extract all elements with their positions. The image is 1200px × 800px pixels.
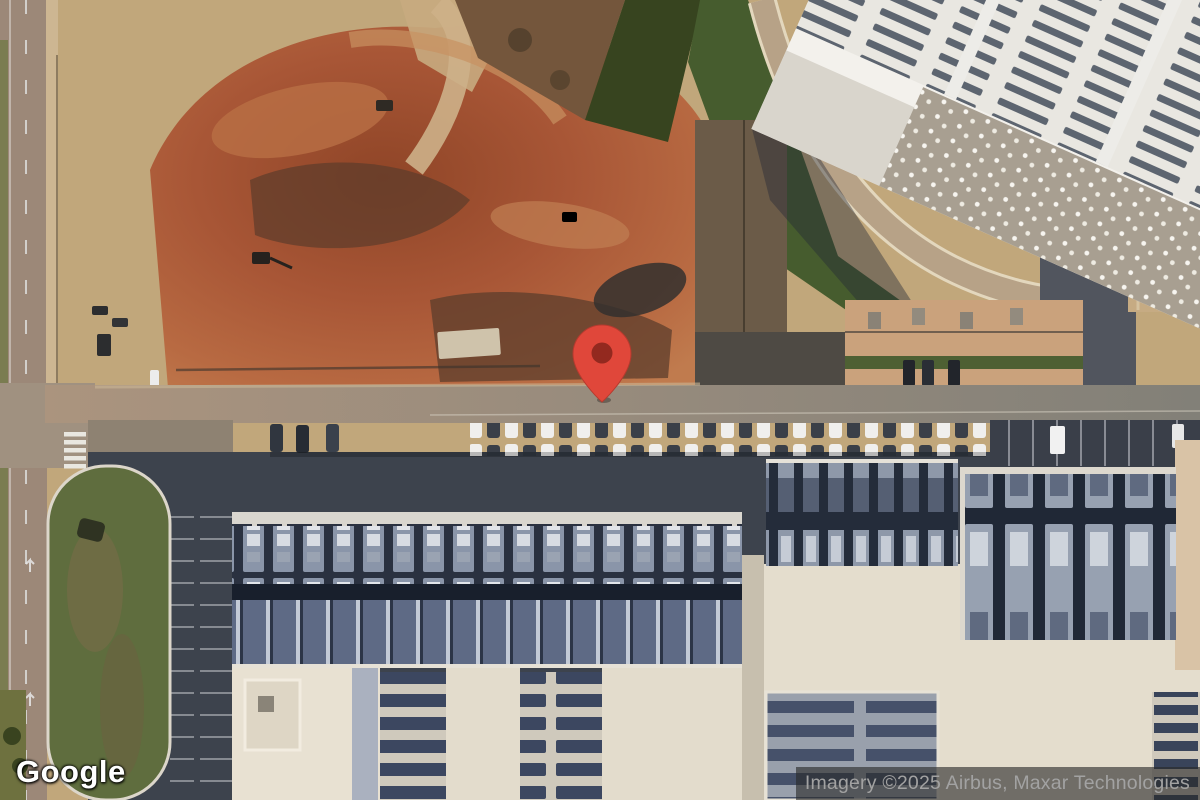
imagery-attribution-text: Imagery ©2025 Airbus, Maxar Technologies [805,772,1190,795]
datacenter-hall-main [232,512,742,668]
cream-rooftops-left [232,668,742,800]
bottom-right-complex [742,440,1200,800]
imagery-attribution-bar: Imagery ©2025 Airbus, Maxar Technologies [796,767,1200,800]
map-viewport[interactable]: Google Imagery ©2025 Airbus, Maxar Techn… [0,0,1200,800]
satellite-imagery[interactable] [0,0,1200,800]
google-logo[interactable]: Google [16,754,126,790]
